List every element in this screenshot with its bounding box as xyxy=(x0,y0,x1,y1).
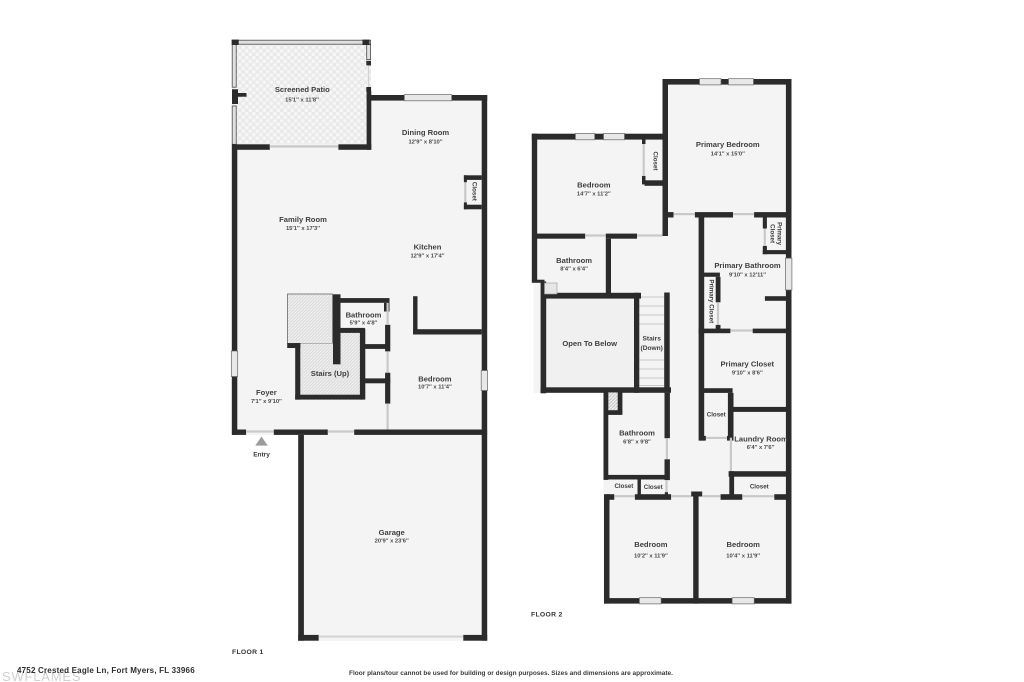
svg-text:FLOOR 1: FLOOR 1 xyxy=(232,649,264,656)
svg-text:FLOOR 2: FLOOR 2 xyxy=(531,612,563,619)
svg-text:Primary Closet: Primary Closet xyxy=(708,279,715,323)
svg-text:9′10″ x 12′11″: 9′10″ x 12′11″ xyxy=(729,272,766,278)
svg-text:Family Room: Family Room xyxy=(279,215,327,224)
svg-text:20′9″ x 23′6″: 20′9″ x 23′6″ xyxy=(375,538,409,544)
svg-text:5′9″ x 4′8″: 5′9″ x 4′8″ xyxy=(350,321,378,327)
svg-text:Stairs: Stairs xyxy=(643,335,662,342)
svg-text:12′9″ x 8′10″: 12′9″ x 8′10″ xyxy=(408,139,442,145)
svg-text:Bathroom: Bathroom xyxy=(346,310,382,319)
svg-text:Primary Bathroom: Primary Bathroom xyxy=(714,261,781,270)
svg-text:Closet: Closet xyxy=(707,412,726,419)
svg-text:Stairs (Up): Stairs (Up) xyxy=(311,369,350,378)
svg-text:14′1″ x 15′0″: 14′1″ x 15′0″ xyxy=(711,152,745,158)
svg-text:12′9″ x 17′4″: 12′9″ x 17′4″ xyxy=(410,253,444,259)
svg-text:Closet: Closet xyxy=(750,484,769,491)
svg-text:Primary Bedroom: Primary Bedroom xyxy=(696,140,760,149)
svg-text:Bedroom: Bedroom xyxy=(727,540,761,549)
svg-text:(Down): (Down) xyxy=(641,345,663,352)
svg-text:9′10″ x 8′6″: 9′10″ x 8′6″ xyxy=(732,371,763,377)
svg-text:Dining Room: Dining Room xyxy=(402,128,449,137)
svg-text:15′1″ x 17′3″: 15′1″ x 17′3″ xyxy=(286,226,320,232)
svg-text:Entry: Entry xyxy=(253,452,270,459)
svg-text:Kitchen: Kitchen xyxy=(414,242,442,251)
svg-text:6′8″ x 9′8″: 6′8″ x 9′8″ xyxy=(623,440,651,446)
svg-text:Garage: Garage xyxy=(379,528,405,537)
svg-text:Bedroom: Bedroom xyxy=(418,374,452,383)
svg-text:14′7″ x 11′2″: 14′7″ x 11′2″ xyxy=(577,192,611,198)
svg-text:15′1″ x 11′8″: 15′1″ x 11′8″ xyxy=(285,97,319,103)
svg-text:Primary Closet: Primary Closet xyxy=(720,359,774,368)
svg-text:Closet: Closet xyxy=(652,152,659,171)
svg-text:Primary: Primary xyxy=(776,222,783,246)
svg-text:Bathroom: Bathroom xyxy=(619,429,655,438)
svg-text:Closet: Closet xyxy=(614,483,633,490)
svg-text:6′4″ x 7′6″: 6′4″ x 7′6″ xyxy=(747,445,775,451)
svg-text:Closet: Closet xyxy=(471,182,478,201)
svg-text:Bathroom: Bathroom xyxy=(556,256,592,265)
svg-text:Open To Below: Open To Below xyxy=(562,339,617,348)
svg-text:Laundry Room: Laundry Room xyxy=(734,435,788,444)
svg-text:10′4″ x 11′9″: 10′4″ x 11′9″ xyxy=(726,553,760,559)
svg-text:8′4″ x 6′4″: 8′4″ x 6′4″ xyxy=(560,267,588,273)
svg-text:Floor plans/tour cannot be use: Floor plans/tour cannot be used for buil… xyxy=(349,670,673,677)
svg-text:Screened Patio: Screened Patio xyxy=(275,85,330,94)
svg-text:4752 Crested Eagle Ln, Fort My: 4752 Crested Eagle Ln, Fort Myers, FL 33… xyxy=(17,666,195,675)
svg-text:7′1″ x 9′10″: 7′1″ x 9′10″ xyxy=(251,399,282,405)
svg-text:10′7″ x 11′4″: 10′7″ x 11′4″ xyxy=(418,384,452,390)
svg-text:Closet: Closet xyxy=(768,224,775,243)
svg-text:Bedroom: Bedroom xyxy=(634,540,668,549)
svg-text:Bedroom: Bedroom xyxy=(577,180,611,189)
svg-text:Closet: Closet xyxy=(644,484,663,491)
svg-text:Foyer: Foyer xyxy=(256,388,277,397)
svg-text:10′2″ x 11′9″: 10′2″ x 11′9″ xyxy=(634,553,668,559)
